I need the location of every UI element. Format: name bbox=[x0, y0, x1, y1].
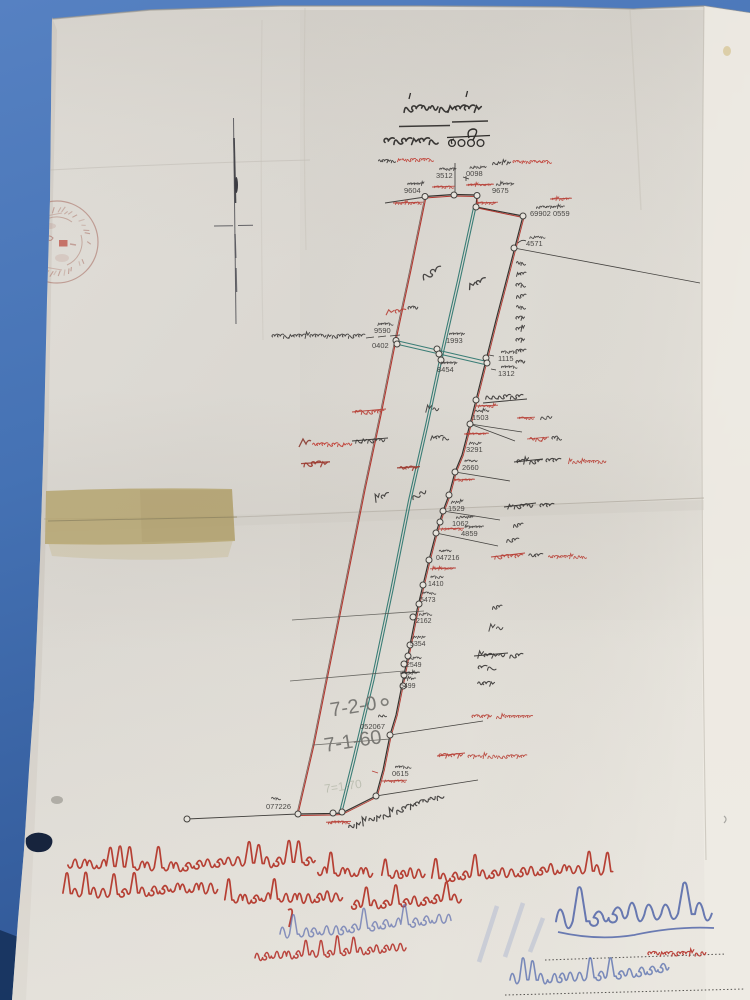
svg-text:5354: 5354 bbox=[410, 641, 426, 648]
svg-text:69902 0559: 69902 0559 bbox=[530, 209, 570, 218]
svg-text:1529: 1529 bbox=[448, 504, 465, 513]
svg-text:1312: 1312 bbox=[498, 369, 515, 378]
svg-text:077226: 077226 bbox=[266, 802, 291, 811]
svg-text:5473: 5473 bbox=[420, 597, 436, 604]
svg-text:2660: 2660 bbox=[462, 463, 479, 472]
svg-text:4859: 4859 bbox=[461, 529, 478, 538]
svg-text:1115: 1115 bbox=[498, 354, 514, 363]
svg-text:8454: 8454 bbox=[437, 365, 454, 374]
svg-text:1503: 1503 bbox=[472, 413, 489, 422]
svg-text:3512: 3512 bbox=[436, 171, 453, 180]
svg-text:9590: 9590 bbox=[374, 326, 391, 335]
svg-text:0615: 0615 bbox=[392, 769, 409, 778]
svg-text:3291: 3291 bbox=[466, 445, 483, 454]
svg-text:0402: 0402 bbox=[372, 341, 389, 350]
svg-text:1410: 1410 bbox=[428, 581, 444, 588]
svg-text:1993: 1993 bbox=[446, 336, 463, 345]
svg-text:9675: 9675 bbox=[492, 186, 509, 195]
svg-text:9604: 9604 bbox=[404, 186, 421, 195]
svg-text:047216: 047216 bbox=[436, 555, 459, 562]
svg-text:5499: 5499 bbox=[400, 683, 416, 690]
svg-text:0098: 0098 bbox=[466, 169, 483, 178]
svg-text:2549: 2549 bbox=[406, 662, 422, 669]
svg-text:2162: 2162 bbox=[416, 618, 432, 625]
svg-text:4571: 4571 bbox=[526, 239, 543, 248]
